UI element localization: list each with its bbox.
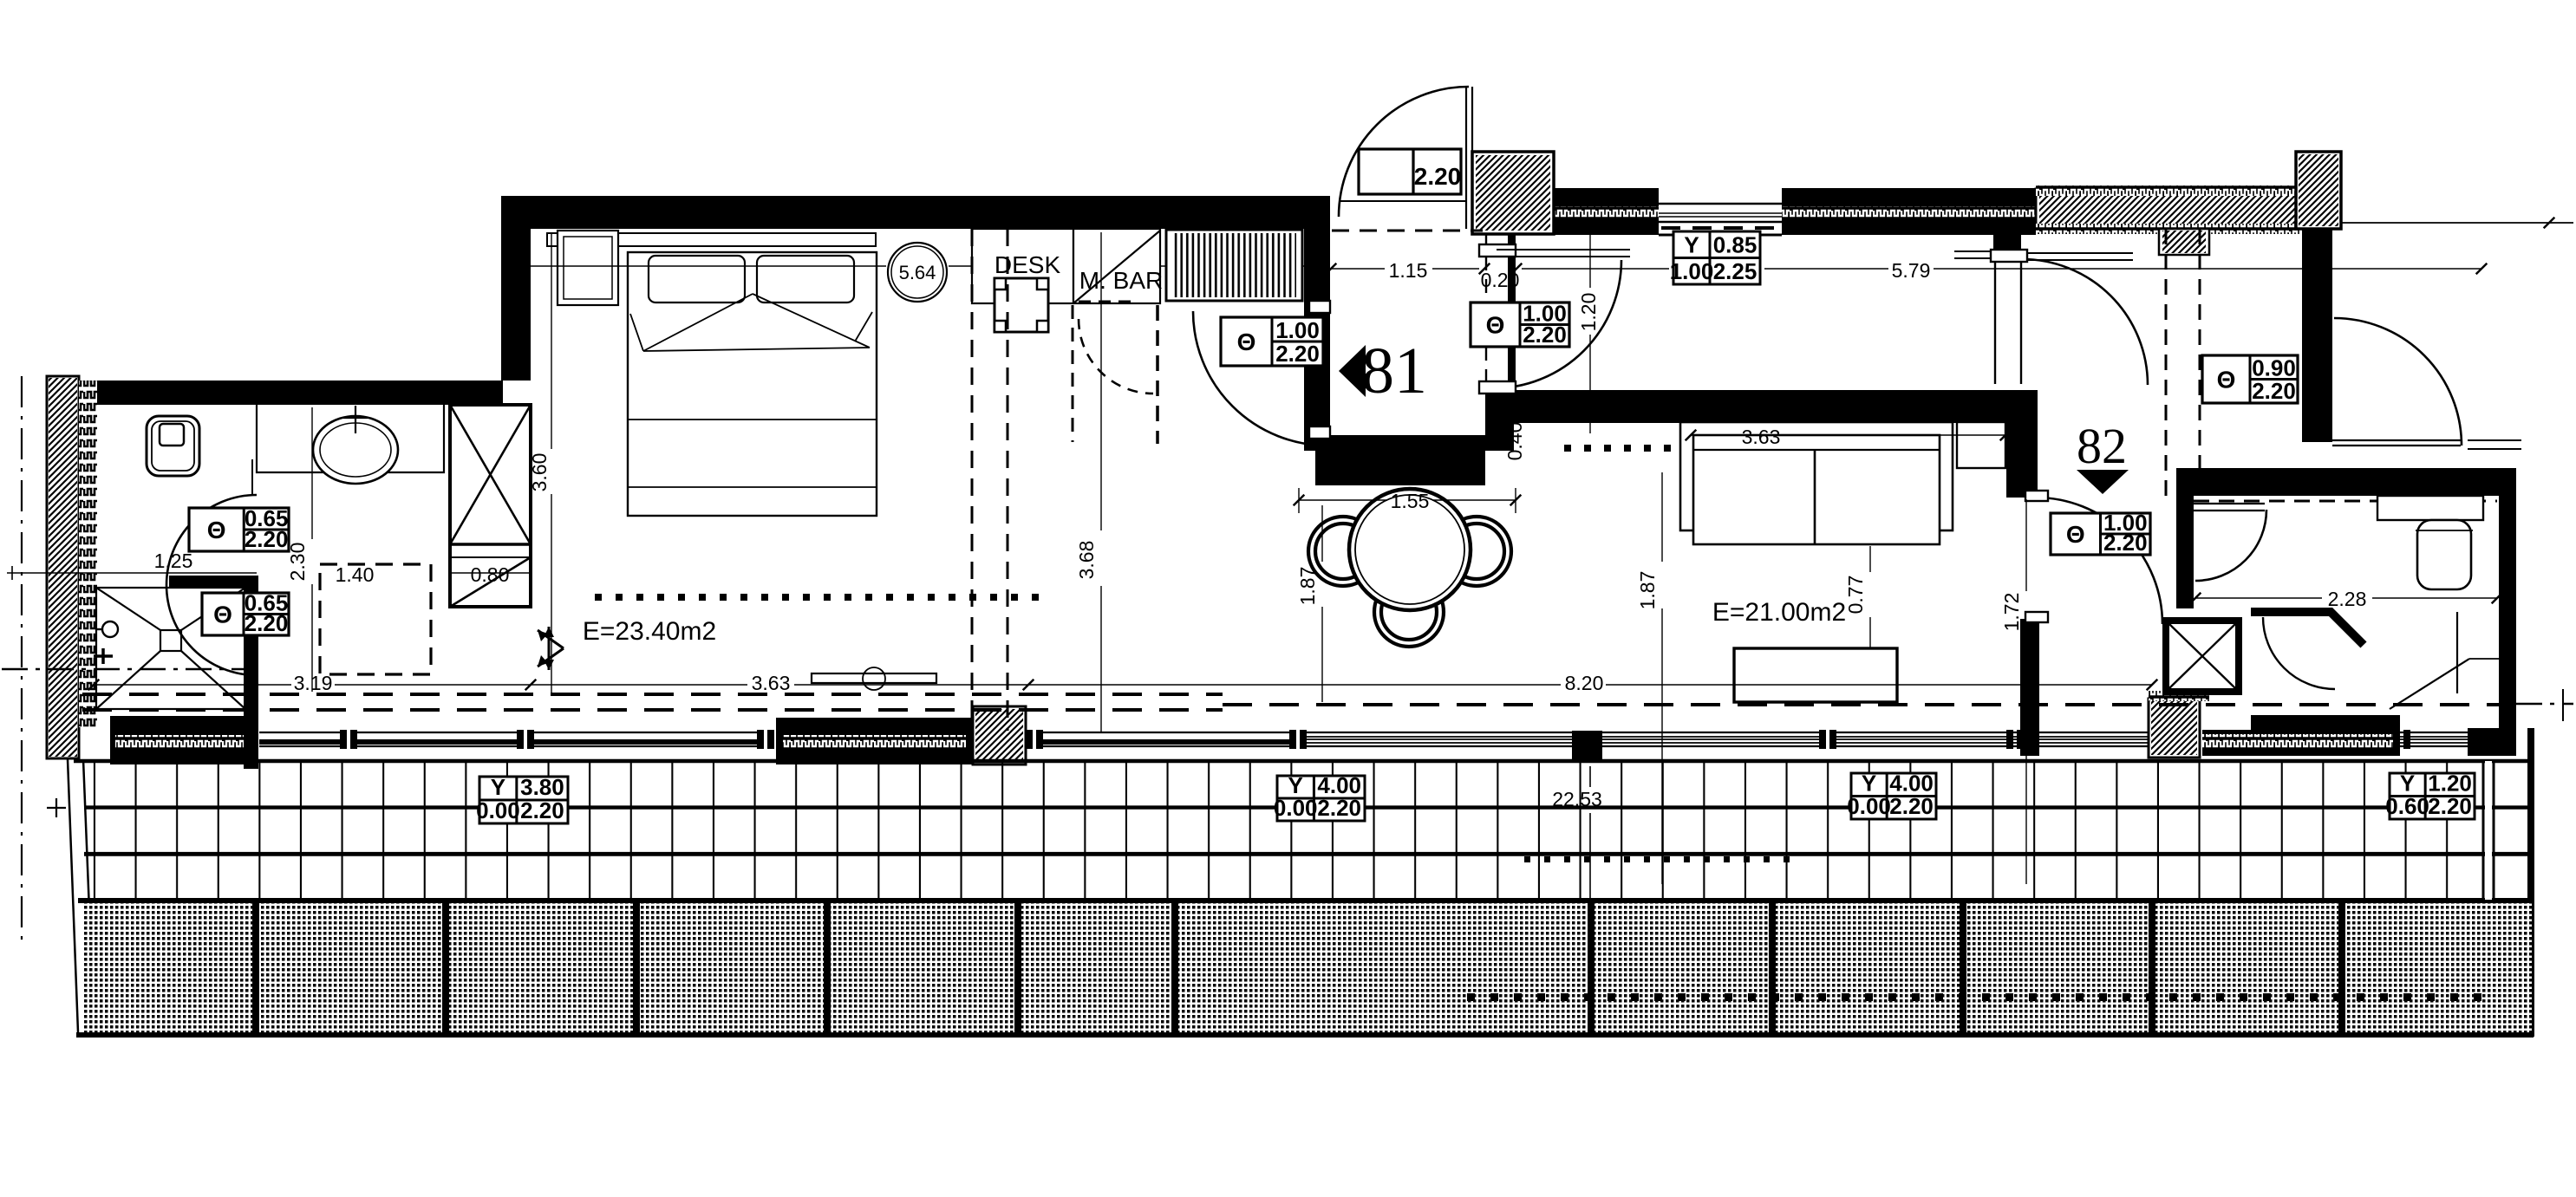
- svg-text:82: 82: [2077, 418, 2127, 474]
- svg-text:0.77: 0.77: [1844, 576, 1867, 615]
- svg-text:8.20: 8.20: [1565, 672, 1604, 694]
- svg-text:2.20: 2.20: [520, 797, 564, 823]
- svg-text:3.63: 3.63: [752, 672, 791, 694]
- svg-text:22.53: 22.53: [1552, 788, 1602, 810]
- svg-text:2.20: 2.20: [1317, 795, 1361, 821]
- svg-text:1.25: 1.25: [154, 550, 193, 572]
- svg-text:0.60: 0.60: [2385, 793, 2429, 819]
- svg-text:1.00: 1.00: [1670, 258, 1714, 284]
- svg-text:3.19: 3.19: [294, 672, 333, 694]
- svg-text:2.20: 2.20: [1414, 163, 1462, 190]
- svg-text:Y: Y: [491, 774, 505, 800]
- svg-text:0.00: 0.00: [476, 797, 520, 823]
- svg-text:2.20: 2.20: [1523, 322, 1567, 348]
- svg-text:0.00: 0.00: [1847, 793, 1891, 819]
- svg-text:Y: Y: [1862, 771, 1876, 797]
- svg-text:0.90: 0.90: [2252, 355, 2296, 381]
- svg-text:0.40: 0.40: [1503, 422, 1526, 461]
- svg-text:Θ: Θ: [1237, 329, 1256, 355]
- svg-text:2.20: 2.20: [245, 526, 289, 552]
- svg-text:4.00: 4.00: [1889, 771, 1934, 797]
- svg-text:2.25: 2.25: [1713, 258, 1758, 284]
- svg-text:2.28: 2.28: [2328, 588, 2367, 610]
- svg-text:M. BAR: M. BAR: [1079, 267, 1163, 294]
- svg-text:0.00: 0.00: [1274, 795, 1318, 821]
- svg-text:Θ: Θ: [1486, 312, 1505, 339]
- svg-text:1.87: 1.87: [1296, 567, 1319, 606]
- svg-text:0.85: 0.85: [1713, 232, 1758, 258]
- svg-text:3.60: 3.60: [528, 453, 551, 492]
- svg-text:0.20: 0.20: [1481, 269, 1520, 291]
- svg-text:Θ: Θ: [2066, 521, 2085, 548]
- svg-text:1.87: 1.87: [1636, 571, 1659, 610]
- svg-text:Θ: Θ: [207, 517, 226, 543]
- svg-text:2.20: 2.20: [1275, 341, 1320, 367]
- svg-text:1.40: 1.40: [336, 563, 375, 586]
- svg-text:1.55: 1.55: [1391, 490, 1430, 512]
- svg-text:1.20: 1.20: [2428, 771, 2472, 797]
- svg-text:5.64: 5.64: [899, 262, 936, 283]
- svg-text:1.00: 1.00: [1275, 317, 1320, 343]
- svg-text:E=23.40m2: E=23.40m2: [583, 617, 716, 646]
- svg-text:Y: Y: [1684, 232, 1699, 258]
- svg-text:Θ: Θ: [213, 602, 232, 628]
- svg-text:E=21.00m2: E=21.00m2: [1712, 598, 1846, 627]
- svg-text:2.20: 2.20: [2103, 530, 2148, 556]
- svg-text:81: 81: [1361, 335, 1427, 407]
- svg-text:Y: Y: [2400, 771, 2415, 797]
- svg-text:Θ: Θ: [2217, 367, 2236, 394]
- svg-text:3.63: 3.63: [1742, 426, 1781, 448]
- svg-text:5.79: 5.79: [1892, 259, 1931, 282]
- svg-text:DESK: DESK: [995, 251, 1061, 278]
- svg-text:0.80: 0.80: [471, 563, 510, 586]
- svg-text:2.20: 2.20: [245, 610, 289, 636]
- svg-text:2.20: 2.20: [1889, 793, 1934, 819]
- svg-text:1.20: 1.20: [1577, 293, 1600, 332]
- svg-text:3.80: 3.80: [520, 774, 564, 800]
- svg-text:1.72: 1.72: [2000, 593, 2023, 632]
- svg-text:1.15: 1.15: [1389, 259, 1428, 282]
- svg-text:2.20: 2.20: [2428, 793, 2472, 819]
- svg-text:2.20: 2.20: [2252, 378, 2296, 404]
- svg-text:3.68: 3.68: [1075, 541, 1098, 580]
